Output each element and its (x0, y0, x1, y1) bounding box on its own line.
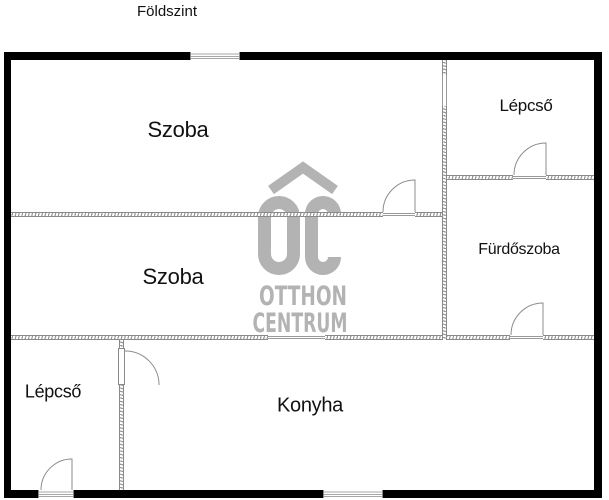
floor-plan: Földszint OTTHON CENTRUM (0, 0, 609, 500)
room-label-lepcso-bottom: Lépcső (25, 382, 81, 403)
interior-wall (546, 175, 594, 180)
room-label-furdoszoba: Fürdőszoba (478, 241, 560, 259)
interior-wall (415, 212, 443, 217)
entrance-opening (38, 490, 74, 498)
window-bottom (323, 490, 383, 498)
passage-opening (268, 336, 325, 339)
logo-roof-icon (271, 168, 335, 191)
wall-left (4, 52, 11, 498)
page-title: Földszint (137, 3, 197, 20)
interior-wall (325, 335, 510, 340)
wall-top (4, 52, 602, 60)
wall-opening (442, 75, 447, 106)
door-swing-lepcso-top (514, 143, 546, 175)
room-label-szoba-middle: Szoba (143, 264, 204, 290)
door-leaf (118, 348, 125, 385)
interior-wall (447, 175, 513, 180)
watermark-line1: OTTHON (259, 281, 347, 312)
interior-wall (442, 106, 447, 340)
interior-wall (543, 335, 594, 340)
wall-right (594, 52, 602, 498)
interior-wall (10, 335, 268, 340)
door-threshold (510, 336, 543, 339)
room-label-szoba-top: Szoba (148, 117, 209, 143)
interior-wall (442, 60, 447, 75)
door-swing-szoba (383, 180, 415, 212)
interior-wall (119, 340, 124, 348)
room-label-konyha: Konyha (277, 395, 343, 418)
window-top (190, 52, 240, 60)
interior-wall (119, 385, 124, 490)
door-swing-konyha (125, 351, 159, 385)
door-threshold (383, 213, 415, 216)
door-threshold (513, 176, 546, 179)
door-swing-furdoszoba (511, 303, 543, 335)
wall-bottom (4, 490, 602, 498)
room-label-lepcso-top: Lépcső (499, 96, 552, 116)
interior-wall (10, 212, 383, 217)
door-swing-entrance (41, 459, 72, 490)
